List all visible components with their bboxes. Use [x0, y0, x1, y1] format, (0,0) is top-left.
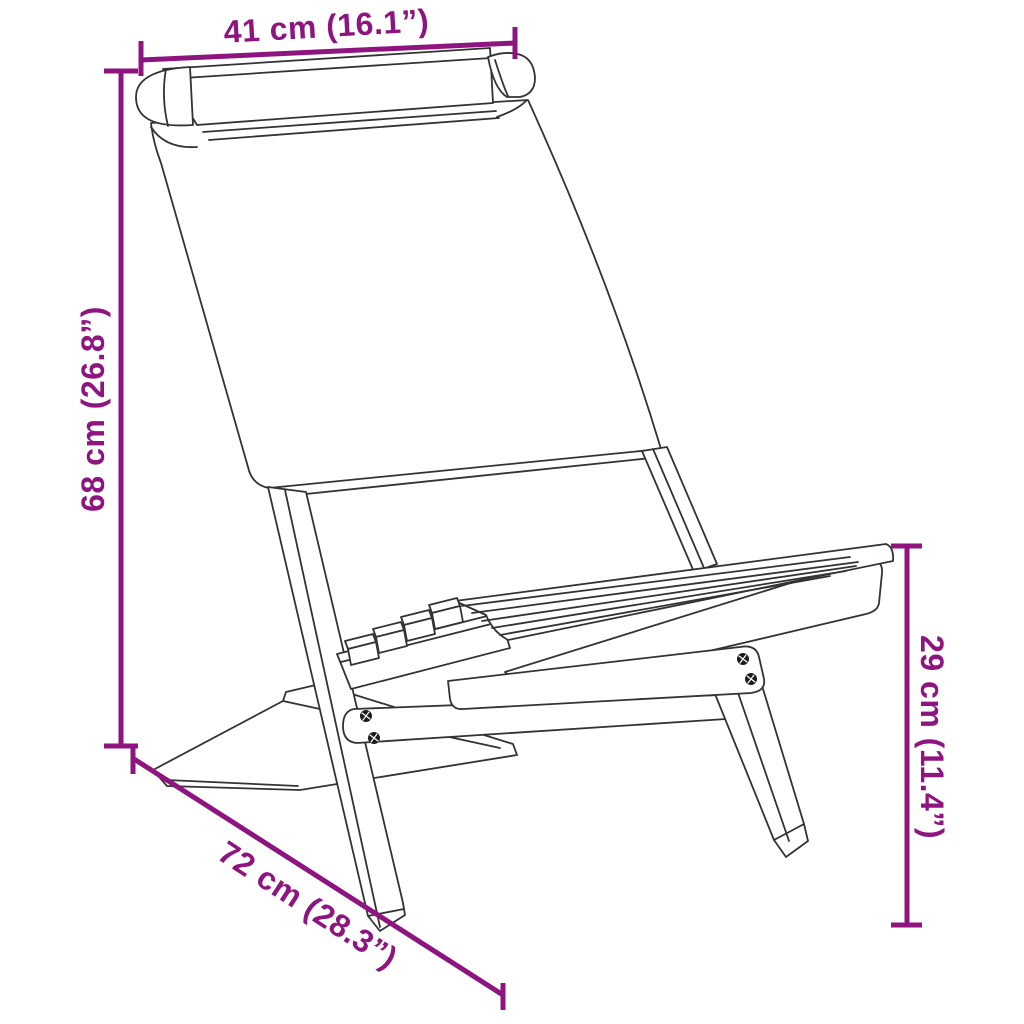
- dimension-left-height-label: 68 cm (26.8”): [75, 306, 111, 512]
- chair-backrest-fabric: [151, 100, 661, 497]
- dimension-right-height: 29 cm (11.4”): [891, 546, 950, 925]
- dimension-left-height: 68 cm (26.8”): [75, 71, 138, 746]
- screw: [746, 674, 757, 685]
- screw: [369, 733, 380, 744]
- chair-back-rail-right: [642, 447, 717, 572]
- chair-rear-leg: [713, 679, 808, 857]
- screw: [361, 711, 372, 722]
- screw: [738, 654, 749, 665]
- dimension-line: [134, 759, 503, 995]
- chair-line-art: [136, 48, 893, 931]
- dimension-right-height-label: 29 cm (11.4”): [914, 635, 950, 839]
- product-dimension-diagram: 41 cm (16.1”) 68 cm (26.8”) 29 cm (11.4”…: [0, 0, 1024, 1024]
- dimension-top-width-label: 41 cm (16.1”): [223, 2, 430, 50]
